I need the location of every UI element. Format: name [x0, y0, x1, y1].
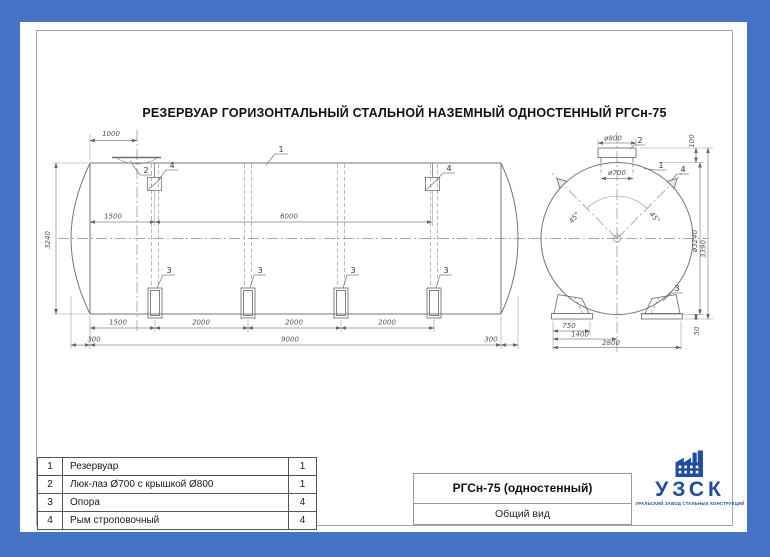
part-number: 2 [38, 476, 63, 493]
drawing-sheet: РЕЗЕРВУАР ГОРИЗОНТАЛЬНЫЙ СТАЛЬНОЙ НАЗЕМН… [20, 22, 747, 532]
dim-label: ø700 [607, 169, 626, 177]
dim-label: ø3240 [691, 229, 699, 253]
callout-tank: 1 [278, 145, 283, 154]
callout-support: 3 [443, 266, 448, 275]
callout-lug: 4 [680, 165, 685, 174]
callout-lug: 4 [446, 164, 451, 173]
dim-label: 3240 [44, 231, 52, 249]
parts-table: 1 Резервуар 1 2 Люк-лаз Ø700 с крышкой Ø… [37, 457, 317, 530]
dim-label: 1500 [104, 213, 122, 221]
angle-label: 45° [567, 210, 581, 225]
part-number: 1 [38, 458, 63, 475]
part-qty: 4 [288, 512, 316, 529]
dim-label: 750 [562, 322, 576, 330]
logo-abbr: УЗСК [655, 479, 725, 501]
part-name: Резервуар [63, 458, 288, 475]
table-row: 4 Рым строповочный 4 [38, 511, 316, 529]
model-designation: РГСн-75 (одностенный) [414, 474, 631, 504]
callout-lug: 4 [169, 161, 174, 170]
logo-tagline: УРАЛЬСКИЙ ЗАВОД СТАЛЬНЫХ КОНСТРУКЦИЙ [635, 501, 744, 506]
dim-label: 6000 [280, 213, 298, 221]
title-block: РГСн-75 (одностенный) Общий вид [413, 473, 632, 525]
angle-label: 45° [647, 210, 661, 225]
company-logo: УЗСК УРАЛЬСКИЙ ЗАВОД СТАЛЬНЫХ КОНСТРУКЦИ… [641, 449, 739, 525]
view-name: Общий вид [414, 504, 631, 524]
dim-label: 2000 [285, 319, 303, 327]
part-name: Рым строповочный [63, 512, 288, 529]
dim-label: 9000 [281, 336, 299, 344]
part-name: Люк-лаз Ø700 с крышкой Ø800 [63, 476, 288, 493]
hidden-lines [152, 164, 438, 287]
callout-tank: 1 [658, 161, 663, 170]
callout-support: 3 [674, 284, 679, 293]
table-row: 3 Опора 4 [38, 493, 316, 511]
dim-label: ø800 [603, 135, 622, 143]
dim-label: 3390 [700, 240, 708, 258]
callout-support: 3 [350, 266, 355, 275]
dim-label: 300 [87, 336, 101, 344]
callout-support: 3 [166, 266, 171, 275]
part-qty: 1 [288, 476, 316, 493]
dim-label: 2000 [192, 319, 210, 327]
table-row: 1 Резервуар 1 [38, 458, 316, 475]
dim-label: 1000 [102, 130, 120, 138]
end-view: ø800 ø700 100 ø3240 3390 50 750 1400 280… [531, 132, 713, 352]
part-qty: 4 [288, 494, 316, 511]
part-qty: 1 [288, 458, 316, 475]
dim-label: 1400 [571, 331, 589, 339]
dim-label: 2000 [378, 319, 396, 327]
callout-manhole: 2 [143, 166, 148, 175]
dim-label: 1500 [109, 319, 127, 327]
part-name: Опора [63, 494, 288, 511]
callout-manhole: 2 [637, 136, 642, 145]
dim-label: 300 [484, 336, 498, 344]
part-number: 4 [38, 512, 63, 529]
callout-support: 3 [257, 266, 262, 275]
centerlines [58, 130, 532, 331]
part-number: 3 [38, 494, 63, 511]
lug-squares [148, 163, 440, 191]
dim-label: 2800 [602, 339, 620, 347]
factory-icon [671, 449, 709, 478]
table-row: 2 Люк-лаз Ø700 с крышкой Ø800 1 [38, 475, 316, 493]
dim-label: 50 [693, 326, 701, 335]
side-view: 1000 1500 6000 3240 1500 2000 2000 2000 … [44, 130, 532, 349]
dim-label: 100 [688, 134, 696, 148]
callout-leaders [130, 154, 455, 288]
screenshot-root: { "colors": {"border_blue":"#4573c5","lo… [0, 0, 770, 557]
